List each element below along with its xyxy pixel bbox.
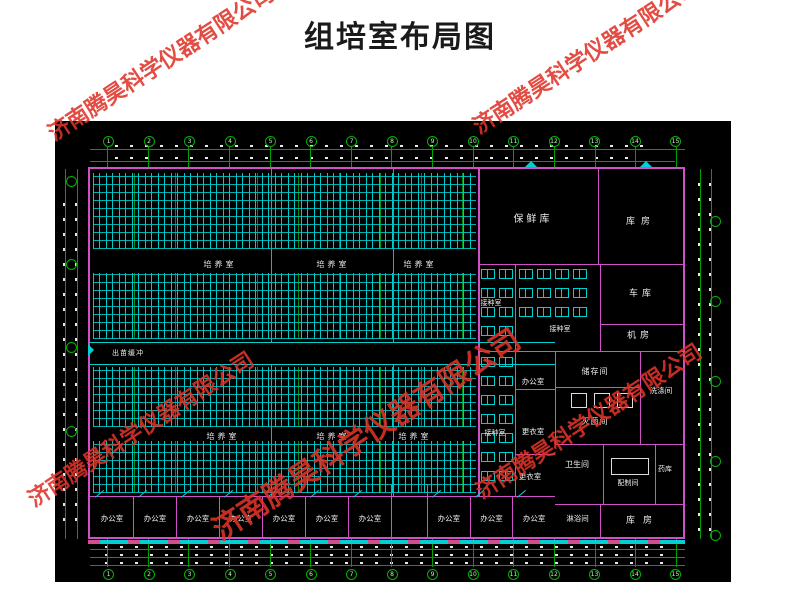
prep-table [611, 458, 649, 475]
office-room: 办公室 [134, 497, 177, 539]
clean-bench [481, 471, 495, 481]
room-label-culture: 培养室 [303, 430, 363, 442]
clean-bench [519, 269, 533, 279]
wall-segment [600, 264, 601, 351]
room-label-washing: 洗涤间 [639, 384, 683, 396]
wall-segment [640, 351, 641, 444]
grid-bubble: 11 [508, 569, 519, 580]
office-row-left: 办公室 办公室 办公室 办公室 办公室 办公室 办公室 [91, 497, 391, 539]
room-label-office: 办公室 [187, 513, 210, 524]
clean-bench [481, 269, 495, 279]
grid-bubble: 15 [670, 136, 681, 147]
room-label-storehouse: 库房 [611, 213, 671, 227]
grid-bubble: 14 [630, 569, 641, 580]
clean-bench [499, 452, 513, 462]
clean-bench [555, 288, 569, 298]
grid-bubble: 5 [265, 136, 276, 147]
room-label-culture: 培养室 [303, 258, 363, 270]
page-title: 组培室布局图 [0, 12, 800, 56]
room-label-machine-room: 机房 [610, 328, 670, 341]
clean-bench [481, 395, 495, 405]
culture-racks [93, 273, 476, 339]
grid-bubble [66, 426, 77, 437]
clean-bench [481, 357, 495, 367]
clean-bench [537, 269, 551, 279]
grid-bubble: 5 [265, 569, 276, 580]
bottom-wall [88, 540, 685, 544]
culture-racks [93, 367, 476, 427]
clean-bench [519, 288, 533, 298]
door-mark [88, 344, 94, 356]
room-label-fresh-keeping: 保鲜库 [503, 210, 563, 224]
clean-bench [499, 376, 513, 386]
room-label-culture: 培养室 [190, 258, 250, 270]
clean-bench [481, 307, 495, 317]
room-label-locker: 更衣室 [511, 471, 549, 482]
grid-stub [554, 147, 555, 169]
grid-bubble: 8 [387, 136, 398, 147]
grid-bubble [66, 176, 77, 187]
grid-bubble: 6 [306, 569, 317, 580]
grid-stub [473, 147, 474, 169]
grid-bubble: 8 [387, 569, 398, 580]
wall-segment [515, 389, 555, 390]
page: { "title": "组培室布局图", "watermark": { "tex… [0, 0, 800, 600]
autoclave [594, 393, 610, 408]
grid-bubble: 12 [549, 136, 560, 147]
grid-bubble: 2 [144, 136, 155, 147]
grid-bubble: 3 [184, 569, 195, 580]
room-label-office: 办公室 [523, 513, 546, 524]
office-room: 办公室 [513, 497, 555, 539]
grid-stub [432, 147, 433, 169]
dimension-ticks [63, 191, 65, 521]
grid-bubble: 6 [306, 136, 317, 147]
room-label-culture: 培养室 [385, 430, 445, 442]
grid-bubble: 12 [549, 569, 560, 580]
grid-bubble [710, 530, 721, 541]
office-room: 办公室 [306, 497, 349, 539]
clean-bench [573, 288, 587, 298]
room-label-seedling-buffer: 出苗缓冲 [95, 348, 161, 358]
grid-bubble: 14 [630, 136, 641, 147]
grid-stub [635, 147, 636, 169]
grid-bubbles-bottom: 123456789101112131415 [103, 569, 681, 580]
room-label-storage: 储存间 [573, 365, 617, 377]
wall-segment [598, 169, 599, 264]
clean-bench [573, 269, 587, 279]
room-label-office: 办公室 [316, 513, 339, 524]
dimension-ticks [75, 191, 77, 521]
clean-bench [499, 269, 513, 279]
room-label-office: 办公室 [144, 513, 167, 524]
dimension-line [65, 169, 66, 539]
grid-bubble [710, 456, 721, 467]
office-room: 办公室 [220, 497, 263, 539]
clean-bench [499, 307, 513, 317]
room-label-media-prep: 配制间 [606, 477, 650, 489]
room-label-office: 办公室 [514, 376, 552, 387]
grid-bubble [66, 259, 77, 270]
clean-bench [499, 357, 513, 367]
grid-bubble: 1 [103, 136, 114, 147]
wall-segment [393, 169, 394, 342]
grid-stub [270, 147, 271, 169]
room-label-culture: 培养室 [390, 258, 450, 270]
grid-stub [676, 147, 677, 169]
grid-bubble: 4 [225, 569, 236, 580]
room-label-sterilizing: 灭菌间 [573, 415, 617, 427]
office-room: 办公室 [177, 497, 220, 539]
grid-bubble: 9 [427, 569, 438, 580]
wall-segment [271, 364, 272, 496]
door-mark [525, 161, 537, 167]
wall-segment [555, 351, 556, 444]
grid-bubbles-top: 123456789101112131415 [103, 136, 681, 147]
clean-bench [499, 326, 513, 336]
grid-stub [107, 147, 108, 169]
clean-bench [481, 414, 495, 424]
room-label-office: 办公室 [359, 513, 382, 524]
wall-segment [271, 169, 272, 342]
grid-stub [391, 147, 392, 169]
wall-segment [555, 504, 685, 505]
grid-bubble: 7 [346, 569, 357, 580]
room-label-chemical-store: 药库 [647, 463, 683, 474]
dimension-line [77, 169, 78, 539]
room-label-toilet: 卫生间 [555, 458, 599, 470]
wall-segment [555, 387, 640, 388]
wall-segment [600, 504, 601, 539]
grid-bubble: 3 [184, 136, 195, 147]
room-label-culture: 培养室 [193, 430, 253, 442]
wall-segment [555, 444, 685, 445]
grid-bubble [710, 376, 721, 387]
room-label-garage: 车库 [612, 286, 672, 299]
wall-segment [478, 169, 480, 496]
room-label-storehouse: 库房 [605, 512, 681, 526]
clean-bench [537, 307, 551, 317]
room-label-office: 办公室 [273, 513, 296, 524]
grid-column-stubs-top [107, 147, 677, 169]
grid-bubble: 4 [225, 136, 236, 147]
clean-bench [573, 307, 587, 317]
grid-bubble: 11 [508, 136, 519, 147]
room-label-office: 办公室 [230, 513, 253, 524]
wall-segment [603, 444, 604, 504]
grid-bubble [710, 296, 721, 307]
culture-racks [93, 173, 476, 249]
clean-bench [481, 376, 495, 386]
office-room: 办公室 [471, 497, 514, 539]
office-room: 办公室 [428, 497, 471, 539]
clean-bench [499, 414, 513, 424]
grid-bubble: 13 [589, 136, 600, 147]
room-label-office: 办公室 [480, 513, 503, 524]
grid-stub [595, 147, 596, 169]
office-room: 办公室 [263, 497, 306, 539]
dimension-line [700, 169, 701, 539]
grid-bubble [66, 342, 77, 353]
clean-bench [555, 307, 569, 317]
grid-bubble: 1 [103, 569, 114, 580]
entrance-corridor-wall [391, 484, 392, 539]
grid-bubble: 15 [670, 569, 681, 580]
wall-segment [600, 324, 685, 325]
room-label-inoculation: 接种室 [476, 427, 514, 438]
room-label-office: 办公室 [438, 513, 461, 524]
grid-stub [229, 147, 230, 169]
grid-bubble: 2 [144, 569, 155, 580]
grid-stub [351, 147, 352, 169]
clean-bench [555, 269, 569, 279]
office-room: 办公室 [91, 497, 134, 539]
wall-segment [515, 264, 516, 351]
grid-stub [310, 147, 311, 169]
grid-stub [513, 147, 514, 169]
wall-segment [655, 444, 656, 504]
grid-bubble: 10 [468, 136, 479, 147]
room-label-locker: 更衣室 [514, 426, 552, 437]
room-label-inoculation: 接种室 [541, 323, 579, 334]
dimension-ticks [698, 181, 700, 531]
grid-bubble: 13 [589, 569, 600, 580]
clean-bench [481, 326, 495, 336]
dimension-ticks [709, 181, 711, 531]
room-label-office: 办公室 [101, 513, 124, 524]
clean-bench [499, 395, 513, 405]
clean-bench [537, 288, 551, 298]
office-row-right: 办公室 办公室 办公室 [428, 497, 555, 539]
cad-canvas: 123456789101112131415 123456789101112131… [55, 121, 731, 582]
culture-racks [93, 441, 476, 493]
grid-bubble: 10 [468, 569, 479, 580]
clean-bench [481, 452, 495, 462]
room-label-inoculation: 接种室 [472, 297, 510, 308]
grid-bubble: 7 [346, 136, 357, 147]
clean-bench [519, 307, 533, 317]
door-mark [640, 161, 652, 167]
grid-stub [188, 147, 189, 169]
autoclave [571, 393, 587, 408]
grid-bubble [710, 216, 721, 227]
room-label-shower: 淋浴间 [555, 512, 600, 524]
grid-bubble: 9 [427, 136, 438, 147]
grid-stub [148, 147, 149, 169]
autoclave [617, 393, 633, 408]
wall-segment [478, 264, 685, 265]
wall-segment [515, 454, 555, 455]
clean-benches [481, 357, 513, 489]
office-room: 办公室 [349, 497, 391, 539]
wall-segment [478, 351, 685, 352]
